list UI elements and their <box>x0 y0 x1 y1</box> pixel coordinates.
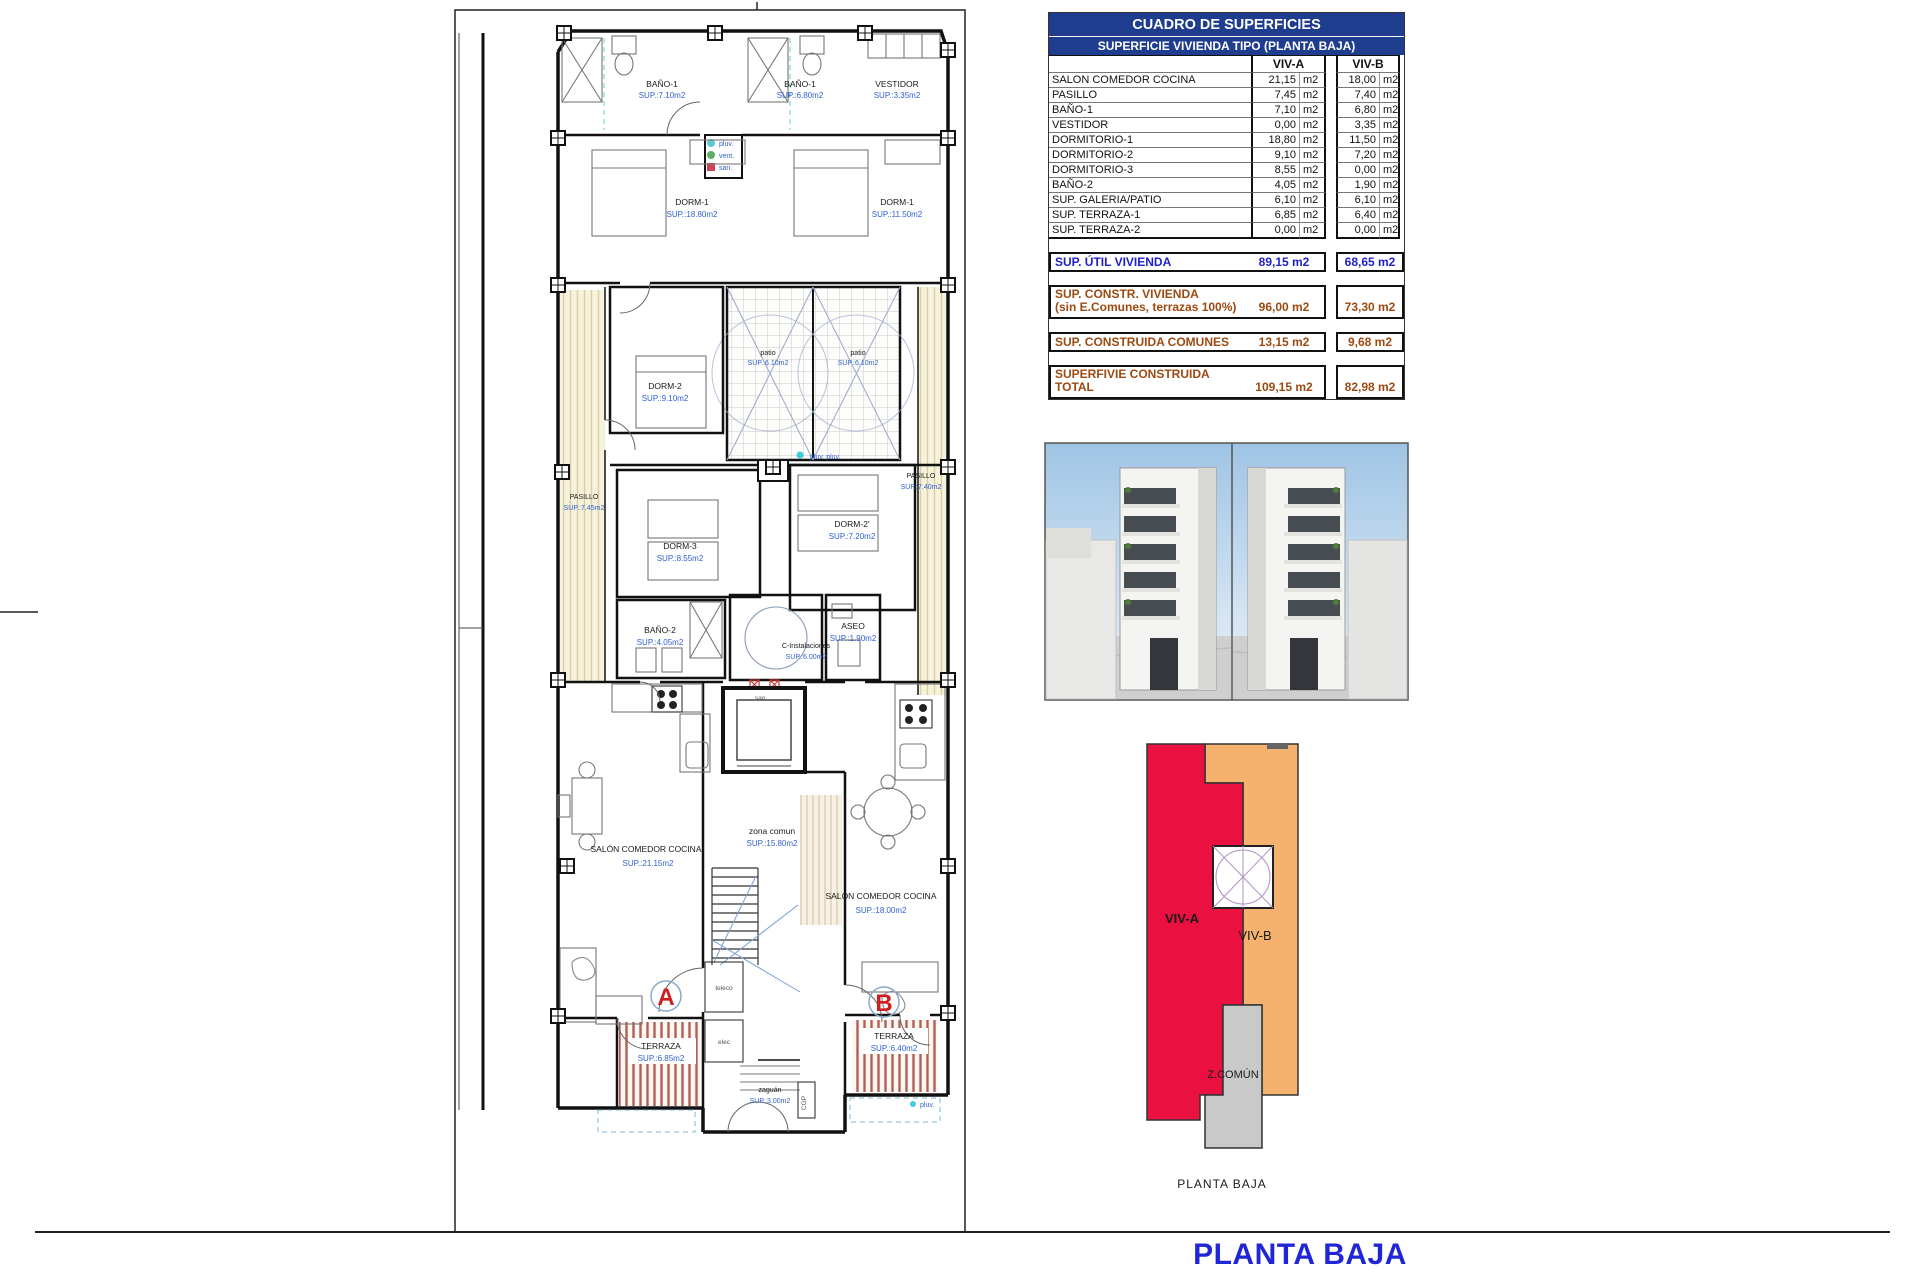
row-viv-a: 7,45 <box>1251 88 1299 103</box>
room-label: ASEO <box>841 621 865 631</box>
row-name: BAÑO-1 <box>1049 103 1251 118</box>
surfaces-table: CUADRO DE SUPERFICIES SUPERFICIE VIVIEND… <box>1048 12 1405 400</box>
table-row: SALON COMEDOR COCINA 21,15 m2 18,00 m2 <box>1049 73 1404 88</box>
room-sup: SUP.:6.10m2 <box>838 360 879 367</box>
room-sup: SUP.:7.10m2 <box>639 91 686 100</box>
legend-pluv: pluv. <box>719 141 733 148</box>
legend-san: san. <box>719 165 732 172</box>
wood-floor <box>800 795 842 925</box>
galeria-right <box>919 287 946 695</box>
sup-comunes-viv-b: 9,68 m2 <box>1336 332 1404 352</box>
row-viv-a: 21,15 <box>1251 73 1299 88</box>
row-viv-b: 6,80 <box>1336 103 1379 118</box>
sup-constr-row: SUP. CONSTR. VIVIENDA (sin E.Comunes, te… <box>1049 285 1404 319</box>
row-viv-b: 3,35 <box>1336 118 1379 133</box>
schematic-notch <box>1267 744 1288 749</box>
table-row: PASILLO 7,45 m2 7,40 m2 <box>1049 88 1404 103</box>
row-unit: m2 <box>1379 118 1400 133</box>
viv-a-label: VIV-A <box>1165 911 1200 926</box>
galeria-left <box>560 290 605 682</box>
room-label: BAÑO-1 <box>784 79 816 89</box>
room-label: VESTIDOR <box>875 79 918 89</box>
sup-total-viv-b: 82,98 m2 <box>1336 365 1404 399</box>
room-label: patio <box>850 350 865 357</box>
row-unit: m2 <box>1379 163 1400 178</box>
sup-util-viv-a: 89,15 m2 <box>1248 255 1320 269</box>
row-unit: m2 <box>1379 223 1400 239</box>
room-label: BAÑO-2 <box>644 625 676 635</box>
row-viv-b: 0,00 <box>1336 163 1379 178</box>
sup-util-row: SUP. ÚTIL VIVIENDA 89,15 m2 68,65 m2 <box>1049 252 1404 272</box>
room-label: SALÓN COMEDOR COCINA <box>591 844 702 854</box>
row-unit: m2 <box>1299 103 1326 118</box>
room-sup: SUP.:7.40m2 <box>901 484 942 491</box>
schematic-elevator <box>1213 846 1273 908</box>
room-label: DORM-1 <box>880 197 914 207</box>
room-sup: SUP.:6.00m2 <box>786 654 827 661</box>
cgp-label: CGP <box>801 1096 808 1110</box>
sup-total-viv-a: 109,15 m2 <box>1248 380 1320 394</box>
room-label: DORM-2 <box>648 381 682 391</box>
legend-vent: vent. <box>719 153 734 160</box>
floor-plan: BAÑO-1 SUP.:7.10m2 BAÑO-1 SUP.:6.80m2 VE… <box>459 26 955 1132</box>
pluv-pluv-label: pluv. pluv. <box>810 454 841 461</box>
room-sup: SUP.:4.05m2 <box>637 638 684 647</box>
unit-a-letter: A <box>657 984 674 1011</box>
render-image <box>1045 443 1408 700</box>
row-viv-a: 0,00 <box>1251 118 1299 133</box>
unit-b-letter: B <box>875 990 892 1017</box>
table-row: SUP. TERRAZA-2 0,00 m2 0,00 m2 <box>1049 223 1404 239</box>
row-viv-b: 6,10 <box>1336 193 1379 208</box>
sheet-title: PLANTA BAJA <box>1170 1238 1430 1272</box>
drawing-canvas: BAÑO-1 SUP.:7.10m2 BAÑO-1 SUP.:6.80m2 VE… <box>0 0 1920 1280</box>
row-unit: m2 <box>1379 178 1400 193</box>
room-label: DORM-1 <box>675 197 709 207</box>
row-viv-a: 8,55 <box>1251 163 1299 178</box>
room-label: patio <box>760 350 775 357</box>
row-name: PASILLO <box>1049 88 1251 103</box>
room-label: PASILLO <box>570 494 599 501</box>
room-label: DORM-3 <box>663 541 697 551</box>
row-unit: m2 <box>1299 163 1326 178</box>
room-sup: SUP.:6.85m2 <box>638 1054 685 1063</box>
sup-total-row: SUPERFIVIE CONSTRUIDA TOTAL 109,15 m2 82… <box>1049 365 1404 399</box>
room-label: zona comun <box>749 826 796 836</box>
schematic-caption: PLANTA BAJA <box>1177 1177 1266 1191</box>
row-unit: m2 <box>1379 73 1400 88</box>
row-unit: m2 <box>1299 148 1326 163</box>
row-viv-a: 6,10 <box>1251 193 1299 208</box>
room-sup: SUP.:7.20m2 <box>829 532 876 541</box>
pluv-bottom-label: pluv. <box>920 1102 934 1109</box>
row-name: SUP. TERRAZA-2 <box>1049 223 1251 239</box>
viv-b-label: VIV-B <box>1238 928 1271 943</box>
row-viv-a: 4,05 <box>1251 178 1299 193</box>
room-label: zaguán <box>759 1087 782 1094</box>
row-unit: m2 <box>1299 88 1326 103</box>
room-sup: SUP.:6.40m2 <box>871 1044 918 1053</box>
row-name: SUP. TERRAZA-1 <box>1049 208 1251 223</box>
room-sup: SUP.:3.00m2 <box>750 1098 791 1105</box>
table-row: BAÑO-2 4,05 m2 1,90 m2 <box>1049 178 1404 193</box>
row-unit: m2 <box>1299 193 1326 208</box>
row-viv-b: 1,90 <box>1336 178 1379 193</box>
table-row: SUP. GALERIA/PATIO 6,10 m2 6,10 m2 <box>1049 193 1404 208</box>
sup-constr-viv-a: 96,00 m2 <box>1248 300 1320 314</box>
sup-comunes-label: SUP. CONSTRUIDA COMUNES <box>1055 335 1248 349</box>
row-viv-b: 18,00 <box>1336 73 1379 88</box>
table-row: DORMITORIO-2 9,10 m2 7,20 m2 <box>1049 148 1404 163</box>
row-unit: m2 <box>1379 103 1400 118</box>
room-sup: SUP.:9.10m2 <box>642 394 689 403</box>
room-sup: SUP.:18.80m2 <box>667 210 719 219</box>
row-unit: m2 <box>1299 208 1326 223</box>
row-unit: m2 <box>1379 208 1400 223</box>
row-unit: m2 <box>1379 148 1400 163</box>
sup-util-label: SUP. ÚTIL VIVIENDA <box>1055 255 1248 269</box>
room-label: C-Instalaciones <box>782 643 831 650</box>
room-sup: SUP.:6.80m2 <box>777 91 824 100</box>
row-viv-b: 7,20 <box>1336 148 1379 163</box>
room-sup: SUP.:3.35m2 <box>874 91 921 100</box>
patio <box>712 287 914 460</box>
room-label: SALÓN COMEDOR COCINA <box>826 891 937 901</box>
room-sup: SUP.:15.80m2 <box>747 839 799 848</box>
room-sup: SUP.:21.15m2 <box>623 859 675 868</box>
sheet: BAÑO-1 SUP.:7.10m2 BAÑO-1 SUP.:6.80m2 VE… <box>0 0 1920 1280</box>
row-viv-a: 0,00 <box>1251 223 1299 239</box>
room-label: TERRAZA <box>874 1031 914 1041</box>
table-subtitle: SUPERFICIE VIVIENDA TIPO (PLANTA BAJA) <box>1049 37 1404 55</box>
room-sup: SUP.:8.55m2 <box>657 554 704 563</box>
sup-constr-label-1: SUP. CONSTR. VIVIENDA <box>1055 287 1199 301</box>
sup-total-label-2: TOTAL <box>1055 380 1094 394</box>
row-viv-b: 7,40 <box>1336 88 1379 103</box>
room-labels: BAÑO-1 SUP.:7.10m2 BAÑO-1 SUP.:6.80m2 VE… <box>564 79 942 1105</box>
row-unit: m2 <box>1379 133 1400 148</box>
sup-comunes-row: SUP. CONSTRUIDA COMUNES 13,15 m2 9,68 m2 <box>1049 332 1404 352</box>
table-row: BAÑO-1 7,10 m2 6,80 m2 <box>1049 103 1404 118</box>
row-unit: m2 <box>1299 223 1326 239</box>
row-name: DORMITORIO-3 <box>1049 163 1251 178</box>
row-name: SUP. GALERIA/PATIO <box>1049 193 1251 208</box>
sup-util-viv-b: 68,65 m2 <box>1336 252 1404 272</box>
row-name: DORMITORIO-1 <box>1049 133 1251 148</box>
table-row: SUP. TERRAZA-1 6,85 m2 6,40 m2 <box>1049 208 1404 223</box>
row-unit: m2 <box>1299 178 1326 193</box>
row-viv-a: 18,80 <box>1251 133 1299 148</box>
room-sup: SUP.:6.10m2 <box>748 360 789 367</box>
row-unit: m2 <box>1299 133 1326 148</box>
table-row: DORMITORIO-1 18,80 m2 11,50 m2 <box>1049 133 1404 148</box>
row-viv-b: 11,50 <box>1336 133 1379 148</box>
table-title: CUADRO DE SUPERFICIES <box>1049 13 1404 37</box>
site-boundary-lines <box>459 33 483 1110</box>
sup-constr-viv-b: 73,30 m2 <box>1336 285 1404 319</box>
row-unit: m2 <box>1379 193 1400 208</box>
row-viv-a: 6,85 <box>1251 208 1299 223</box>
row-name: BAÑO-2 <box>1049 178 1251 193</box>
table-column-header-row: VIV-A VIV-B <box>1049 55 1404 73</box>
room-label: DORM-2' <box>834 519 870 529</box>
teleco-label: teleco <box>715 985 733 992</box>
unit-schematic: VIV-A VIV-B Z.COMÚN PLANTA BAJA <box>1147 744 1298 1191</box>
room-sup: SUP.:7.45m2 <box>564 505 605 512</box>
row-viv-a: 9,10 <box>1251 148 1299 163</box>
row-viv-a: 7,10 <box>1251 103 1299 118</box>
room-sup: SUP.:18.00m2 <box>856 906 908 915</box>
room-label: TERRAZA <box>641 1041 681 1051</box>
col-header-viv-b: VIV-B <box>1336 55 1400 73</box>
room-sup: SUP.:1.90m2 <box>830 634 877 643</box>
z-comun-label: Z.COMÚN <box>1207 1068 1258 1081</box>
san-label: san. <box>755 695 767 702</box>
row-name: VESTIDOR <box>1049 118 1251 133</box>
row-unit: m2 <box>1379 88 1400 103</box>
row-name: SALON COMEDOR COCINA <box>1049 73 1251 88</box>
elec-label: elec <box>718 1039 731 1046</box>
row-unit: m2 <box>1299 73 1326 88</box>
row-unit: m2 <box>1299 118 1326 133</box>
sup-total-label-1: SUPERFIVIE CONSTRUIDA <box>1055 367 1210 381</box>
room-sup: SUP.:11.50m2 <box>872 210 923 219</box>
stairs <box>712 868 800 992</box>
table-row: VESTIDOR 0,00 m2 3,35 m2 <box>1049 118 1404 133</box>
row-name: DORMITORIO-2 <box>1049 148 1251 163</box>
room-label: PASILLO <box>907 473 936 480</box>
table-row: DORMITORIO-3 8,55 m2 0,00 m2 <box>1049 163 1404 178</box>
sup-comunes-viv-a: 13,15 m2 <box>1248 335 1320 349</box>
row-viv-b: 0,00 <box>1336 223 1379 239</box>
room-label: BAÑO-1 <box>646 79 678 89</box>
pluv-icon <box>910 1101 916 1107</box>
row-viv-b: 6,40 <box>1336 208 1379 223</box>
sup-constr-label-2: (sin E.Comunes, terrazas 100%) <box>1055 300 1236 314</box>
column-markers <box>551 26 955 1023</box>
col-header-viv-a: VIV-A <box>1251 55 1326 73</box>
